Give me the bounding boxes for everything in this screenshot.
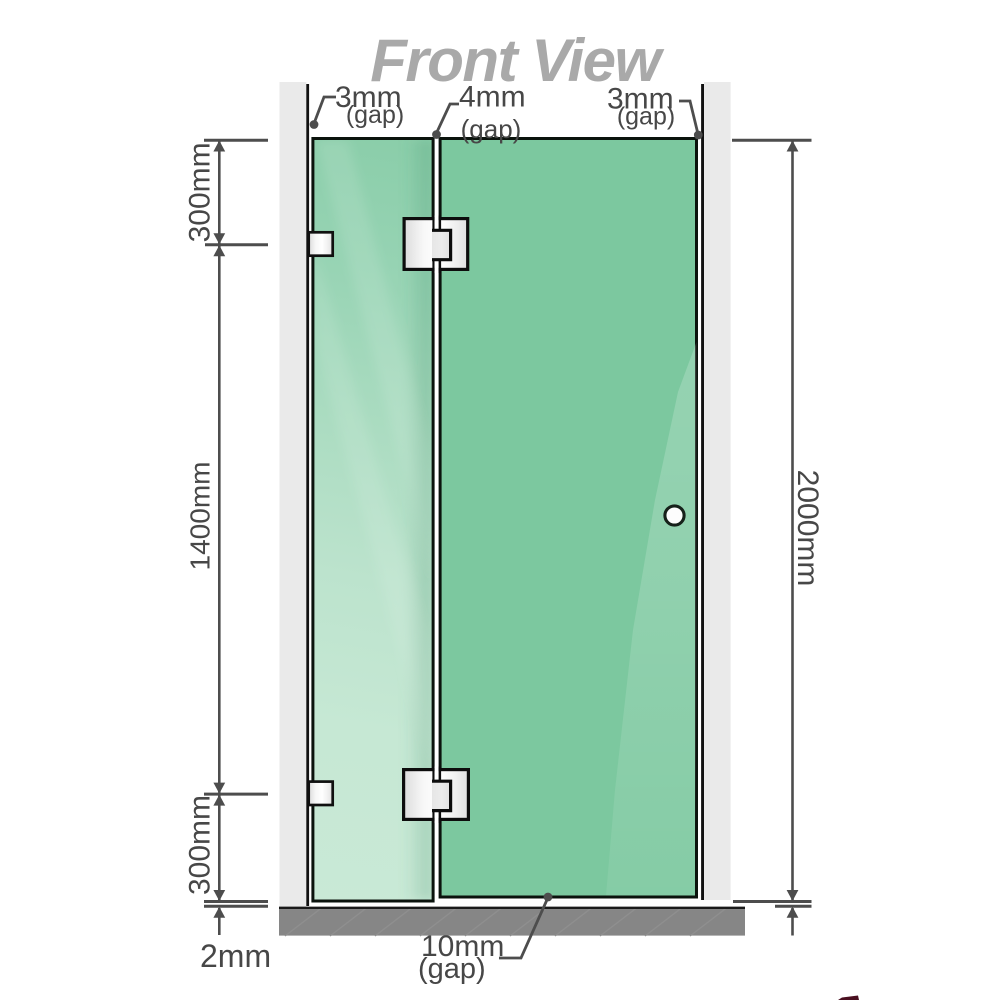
svg-text:2000mm: 2000mm — [791, 470, 824, 587]
svg-text:300mm: 300mm — [184, 795, 217, 895]
svg-text:(gap): (gap) — [461, 114, 522, 144]
svg-text:(gap): (gap) — [346, 101, 404, 129]
svg-text:300mm: 300mm — [184, 142, 217, 242]
svg-text:4mm: 4mm — [459, 81, 526, 114]
svg-text:2mm: 2mm — [200, 938, 271, 974]
svg-text:(gap): (gap) — [617, 103, 675, 131]
svg-text:(gap): (gap) — [418, 953, 486, 985]
svg-text:1400mm: 1400mm — [185, 462, 216, 571]
